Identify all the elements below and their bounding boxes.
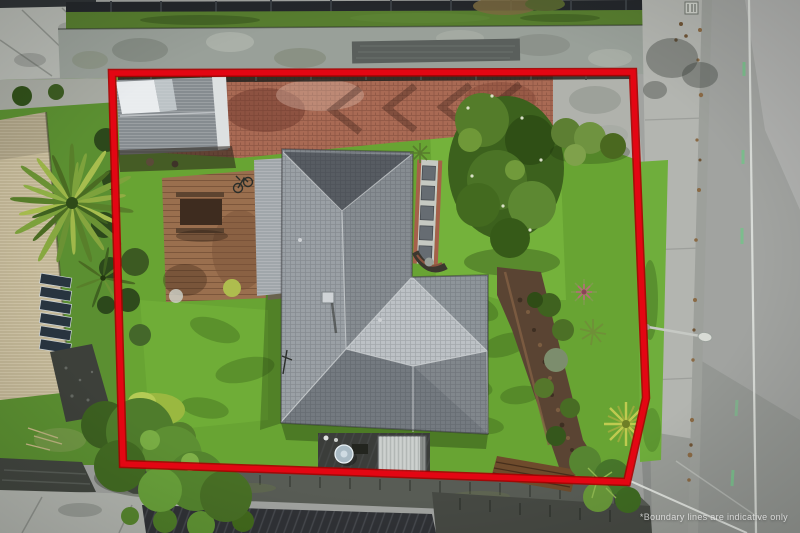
aerial-photo-canvas bbox=[0, 0, 800, 533]
aerial-photo: *Boundary lines are indicative only bbox=[0, 0, 800, 533]
